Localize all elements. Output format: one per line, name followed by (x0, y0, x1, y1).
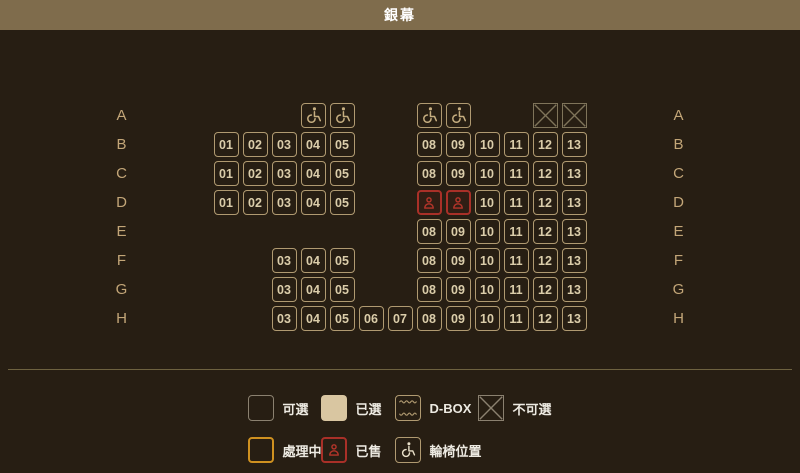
seat-B01[interactable]: 01 (214, 132, 239, 157)
legend-label-available: 可選 (282, 399, 308, 418)
legend-label-blocked: 不可選 (512, 399, 551, 418)
legend-item-wheelchair: 輪椅位置 (395, 437, 478, 463)
empty-slot (359, 248, 384, 273)
seat-B05[interactable]: 05 (330, 132, 355, 157)
seat-H10[interactable]: 10 (475, 306, 500, 331)
legend: 可選 已選 D-BOX 不可選 處理中 已售 輪椅位置 (248, 395, 551, 463)
empty-slot (359, 103, 384, 128)
seat-A04-wheelchair[interactable] (301, 103, 326, 128)
wheelchair-icon (449, 106, 468, 125)
seat-A09-wheelchair[interactable] (446, 103, 471, 128)
legend-item-dbox: D-BOX (395, 395, 478, 421)
seat-H11[interactable]: 11 (504, 306, 529, 331)
seat-G03[interactable]: 03 (272, 277, 297, 302)
seat-grid-row-H: 0304050607080910111213 (214, 306, 587, 331)
seat-E08[interactable]: 08 (417, 219, 442, 244)
legend-label-processing: 處理中 (282, 441, 321, 460)
seat-grid-row-G: 030405080910111213 (214, 277, 587, 302)
seat-C03[interactable]: 03 (272, 161, 297, 186)
seat-C04[interactable]: 04 (301, 161, 326, 186)
row-label-right-A: A (659, 107, 699, 124)
legend-item-blocked: 不可選 (478, 395, 551, 421)
legend-item-processing: 處理中 (248, 437, 321, 463)
seat-H05[interactable]: 05 (330, 306, 355, 331)
empty-slot (388, 103, 413, 128)
seat-F13[interactable]: 13 (562, 248, 587, 273)
seat-B13[interactable]: 13 (562, 132, 587, 157)
row-label-left-C: C (102, 165, 142, 182)
empty-slot (388, 277, 413, 302)
seat-D03[interactable]: 03 (272, 190, 297, 215)
seat-row-D: D010203040510111213D (102, 190, 699, 215)
seat-C10[interactable]: 10 (475, 161, 500, 186)
empty-slot (243, 103, 268, 128)
empty-slot (388, 161, 413, 186)
seat-row-C: C0102030405080910111213C (102, 161, 699, 186)
seat-H12[interactable]: 12 (533, 306, 558, 331)
seat-grid-row-B: 0102030405080910111213 (214, 132, 587, 157)
seat-F11[interactable]: 11 (504, 248, 529, 273)
dbox-seat-swatch (395, 395, 421, 421)
seat-A12-blocked (533, 103, 558, 128)
seat-G13[interactable]: 13 (562, 277, 587, 302)
seatmap-legend-divider (8, 369, 792, 370)
seat-E10[interactable]: 10 (475, 219, 500, 244)
seat-D02[interactable]: 02 (243, 190, 268, 215)
selected-seat-swatch (321, 395, 347, 421)
wheelchair-icon (420, 106, 439, 125)
seat-D13[interactable]: 13 (562, 190, 587, 215)
seat-H07[interactable]: 07 (388, 306, 413, 331)
person-icon (450, 195, 466, 211)
seat-D04[interactable]: 04 (301, 190, 326, 215)
seat-C09[interactable]: 09 (446, 161, 471, 186)
legend-label-wheelchair: 輪椅位置 (429, 441, 481, 460)
wheelchair-icon (333, 106, 352, 125)
seat-F03[interactable]: 03 (272, 248, 297, 273)
seat-B02[interactable]: 02 (243, 132, 268, 157)
empty-slot (214, 248, 239, 273)
seat-C11[interactable]: 11 (504, 161, 529, 186)
row-label-left-E: E (102, 223, 142, 240)
seat-grid-row-F: 030405080910111213 (214, 248, 587, 273)
seat-row-H: H0304050607080910111213H (102, 306, 699, 331)
seat-B09[interactable]: 09 (446, 132, 471, 157)
row-label-right-F: F (659, 252, 699, 269)
available-seat-swatch (248, 395, 274, 421)
person-icon (421, 195, 437, 211)
empty-slot (475, 103, 500, 128)
seat-row-F: F030405080910111213F (102, 248, 699, 273)
sold-seat-swatch (321, 437, 347, 463)
seat-grid-row-C: 0102030405080910111213 (214, 161, 587, 186)
wheelchair-icon (399, 441, 417, 459)
seat-G09[interactable]: 09 (446, 277, 471, 302)
seat-E13[interactable]: 13 (562, 219, 587, 244)
empty-slot (243, 219, 268, 244)
seat-B08[interactable]: 08 (417, 132, 442, 157)
seat-D01[interactable]: 01 (214, 190, 239, 215)
seat-H03[interactable]: 03 (272, 306, 297, 331)
screen-title: 銀幕 (384, 5, 416, 25)
seat-D08-sold (417, 190, 442, 215)
seat-row-A: AA (102, 103, 699, 128)
seat-A13-blocked (562, 103, 587, 128)
seat-E11[interactable]: 11 (504, 219, 529, 244)
seat-map: AAB0102030405080910111213BC0102030405080… (0, 103, 800, 331)
legend-item-sold: 已售 (321, 437, 395, 463)
row-label-left-H: H (102, 310, 142, 327)
seat-B11[interactable]: 11 (504, 132, 529, 157)
seat-B12[interactable]: 12 (533, 132, 558, 157)
processing-seat-swatch (248, 437, 274, 463)
legend-item-available: 可選 (248, 395, 321, 421)
empty-slot (243, 248, 268, 273)
row-label-right-B: B (659, 136, 699, 153)
seat-F08[interactable]: 08 (417, 248, 442, 273)
empty-slot (272, 219, 297, 244)
seat-D12[interactable]: 12 (533, 190, 558, 215)
seat-H08[interactable]: 08 (417, 306, 442, 331)
seat-E12[interactable]: 12 (533, 219, 558, 244)
empty-slot (504, 103, 529, 128)
seat-H09[interactable]: 09 (446, 306, 471, 331)
seat-grid-row-E: 080910111213 (214, 219, 587, 244)
row-label-right-C: C (659, 165, 699, 182)
seat-B03[interactable]: 03 (272, 132, 297, 157)
x-icon (479, 396, 503, 420)
seat-F04[interactable]: 04 (301, 248, 326, 273)
seat-row-G: G030405080910111213G (102, 277, 699, 302)
seat-B10[interactable]: 10 (475, 132, 500, 157)
blocked-seat-swatch (478, 395, 504, 421)
empty-slot (388, 248, 413, 273)
seat-G11[interactable]: 11 (504, 277, 529, 302)
seat-H13[interactable]: 13 (562, 306, 587, 331)
empty-slot (214, 277, 239, 302)
seat-H06[interactable]: 06 (359, 306, 384, 331)
empty-slot (388, 190, 413, 215)
seat-grid-row-D: 010203040510111213 (214, 190, 587, 215)
seat-D09-sold (446, 190, 471, 215)
row-label-right-H: H (659, 310, 699, 327)
empty-slot (243, 277, 268, 302)
row-label-right-G: G (659, 281, 699, 298)
seat-H04[interactable]: 04 (301, 306, 326, 331)
seat-G12[interactable]: 12 (533, 277, 558, 302)
seat-C05[interactable]: 05 (330, 161, 355, 186)
seat-G08[interactable]: 08 (417, 277, 442, 302)
empty-slot (214, 306, 239, 331)
legend-item-selected: 已選 (321, 395, 395, 421)
seat-C12[interactable]: 12 (533, 161, 558, 186)
seat-D11[interactable]: 11 (504, 190, 529, 215)
empty-slot (272, 103, 297, 128)
row-label-right-E: E (659, 223, 699, 240)
seat-G10[interactable]: 10 (475, 277, 500, 302)
empty-slot (388, 132, 413, 157)
seat-row-B: B0102030405080910111213B (102, 132, 699, 157)
row-label-left-G: G (102, 281, 142, 298)
seat-grid-row-A (214, 103, 587, 128)
row-label-right-D: D (659, 194, 699, 211)
seat-A08-wheelchair[interactable] (417, 103, 442, 128)
empty-slot (359, 277, 384, 302)
legend-label-dbox: D-BOX (429, 401, 471, 416)
seat-F09[interactable]: 09 (446, 248, 471, 273)
wheelchair-icon (304, 106, 323, 125)
x-icon (534, 104, 557, 127)
empty-slot (359, 161, 384, 186)
empty-slot (330, 219, 355, 244)
empty-slot (359, 132, 384, 157)
row-label-left-F: F (102, 252, 142, 269)
empty-slot (359, 190, 384, 215)
wheelchair-seat-swatch (395, 437, 421, 463)
empty-slot (214, 219, 239, 244)
row-label-left-B: B (102, 136, 142, 153)
person-icon (326, 442, 342, 458)
row-label-left-A: A (102, 107, 142, 124)
seat-row-E: E080910111213E (102, 219, 699, 244)
seat-G04[interactable]: 04 (301, 277, 326, 302)
seat-F05[interactable]: 05 (330, 248, 355, 273)
empty-slot (359, 219, 384, 244)
seat-D05[interactable]: 05 (330, 190, 355, 215)
seat-D10[interactable]: 10 (475, 190, 500, 215)
legend-label-selected: 已選 (355, 399, 381, 418)
seat-F10[interactable]: 10 (475, 248, 500, 273)
seat-C08[interactable]: 08 (417, 161, 442, 186)
seat-C01[interactable]: 01 (214, 161, 239, 186)
seat-A05-wheelchair[interactable] (330, 103, 355, 128)
seat-B04[interactable]: 04 (301, 132, 326, 157)
seat-F12[interactable]: 12 (533, 248, 558, 273)
empty-slot (388, 219, 413, 244)
row-label-left-D: D (102, 194, 142, 211)
seat-G05[interactable]: 05 (330, 277, 355, 302)
x-icon (563, 104, 586, 127)
empty-slot (214, 103, 239, 128)
legend-label-sold: 已售 (355, 441, 381, 460)
dbox-wave-icon (397, 397, 419, 419)
seat-E09[interactable]: 09 (446, 219, 471, 244)
empty-slot (243, 306, 268, 331)
seat-C13[interactable]: 13 (562, 161, 587, 186)
screen-title-bar: 銀幕 (0, 0, 800, 30)
seat-C02[interactable]: 02 (243, 161, 268, 186)
empty-slot (301, 219, 326, 244)
